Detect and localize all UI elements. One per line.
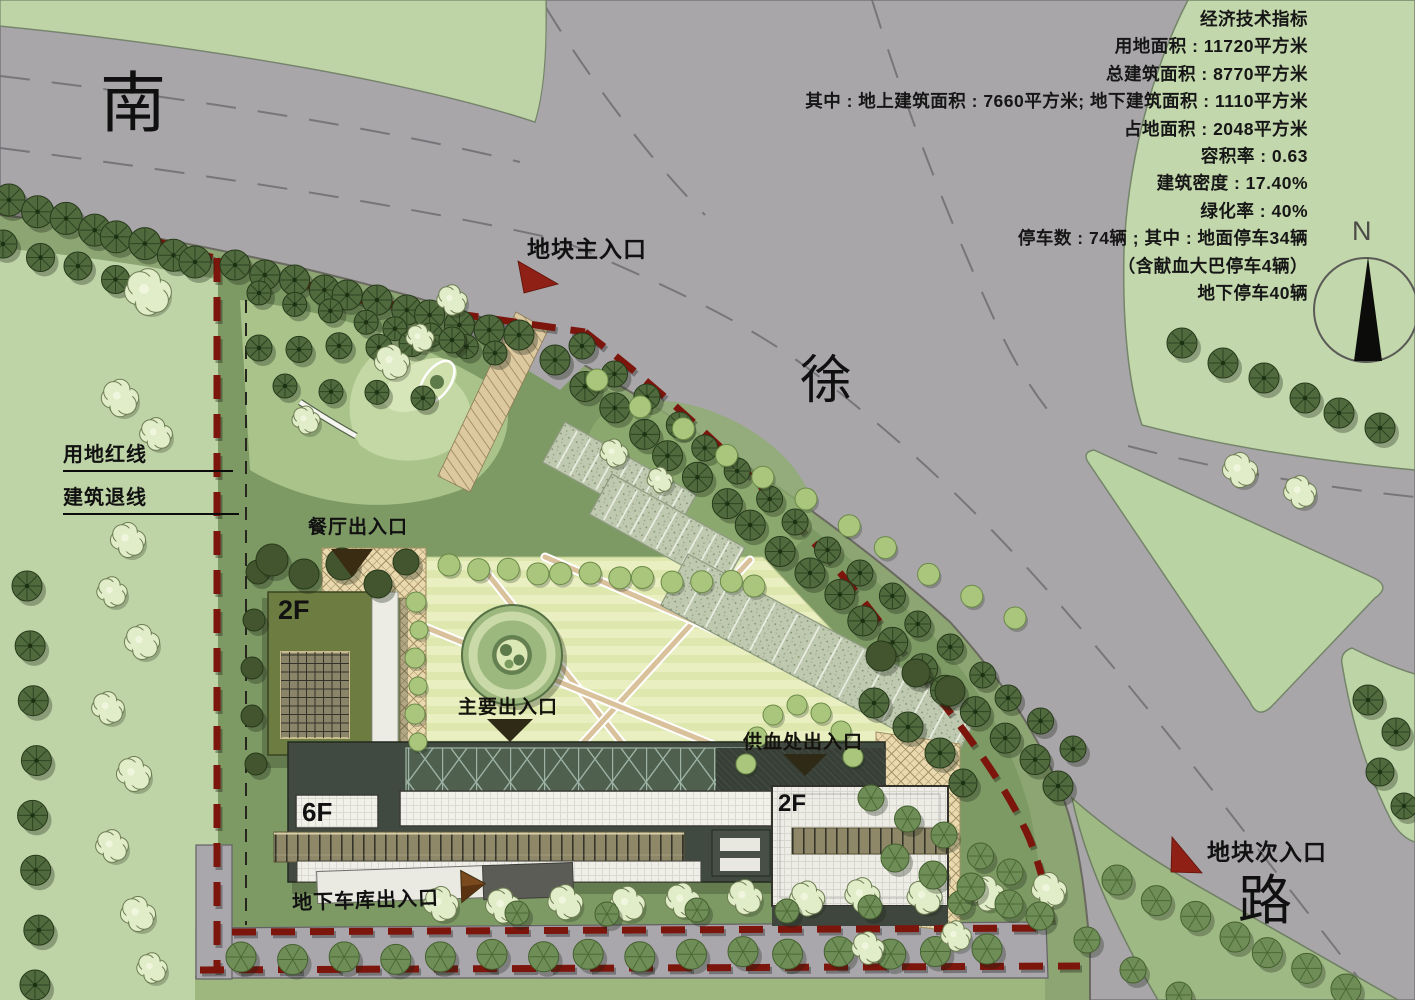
blood-entrance-label: 供血处出入口 (743, 727, 863, 754)
main-door-label: 主要出入口 (458, 692, 558, 719)
garage-entrance-label: 地下车库出入口 (292, 881, 440, 915)
main-entrance-label: 地块主入口 (527, 230, 647, 264)
indicator-line: 绿化率 : 40% (805, 198, 1308, 225)
indicators-title: 经济技术指标 (805, 6, 1308, 33)
indicator-line: （含献血大巴停车4辆） (805, 253, 1308, 280)
north-label: N (1352, 216, 1372, 247)
road-name-lu: 路 (1238, 856, 1292, 935)
site-plan: 经济技术指标 用地面积 : 11720平方米 总建筑面积 : 8770平方米 其… (0, 0, 1415, 1000)
main-floors-label: 6F (302, 797, 332, 828)
canteen-entrance-label: 餐厅出入口 (308, 512, 408, 539)
indicator-line: 停车数 : 74辆 ; 其中 : 地面停车34辆 (805, 225, 1308, 252)
canteen-floors-label: 2F (278, 595, 310, 626)
indicator-line: 地下停车40辆 (805, 280, 1308, 307)
road-name-xu: 徐 (800, 338, 852, 413)
indicator-line: 建筑密度 : 17.40% (805, 170, 1308, 197)
road-name-nan: 南 (100, 50, 166, 146)
indicator-line: 总建筑面积 : 8770平方米 (805, 61, 1308, 88)
clinic-floors-label: 2F (778, 790, 806, 818)
technical-indicators: 经济技术指标 用地面积 : 11720平方米 总建筑面积 : 8770平方米 其… (805, 6, 1308, 307)
indicator-line: 其中 : 地上建筑面积 : 7660平方米; 地下建筑面积 : 1110平方米 (805, 88, 1308, 115)
indicator-line: 用地面积 : 11720平方米 (805, 33, 1308, 60)
indicator-line: 占地面积 : 2048平方米 (805, 116, 1308, 143)
building-setback-label: 建筑退线 (63, 481, 239, 515)
secondary-entrance-label: 地块次入口 (1207, 833, 1327, 867)
indicator-line: 容积率 : 0.63 (805, 143, 1308, 170)
land-red-line-label: 用地红线 (63, 438, 233, 472)
